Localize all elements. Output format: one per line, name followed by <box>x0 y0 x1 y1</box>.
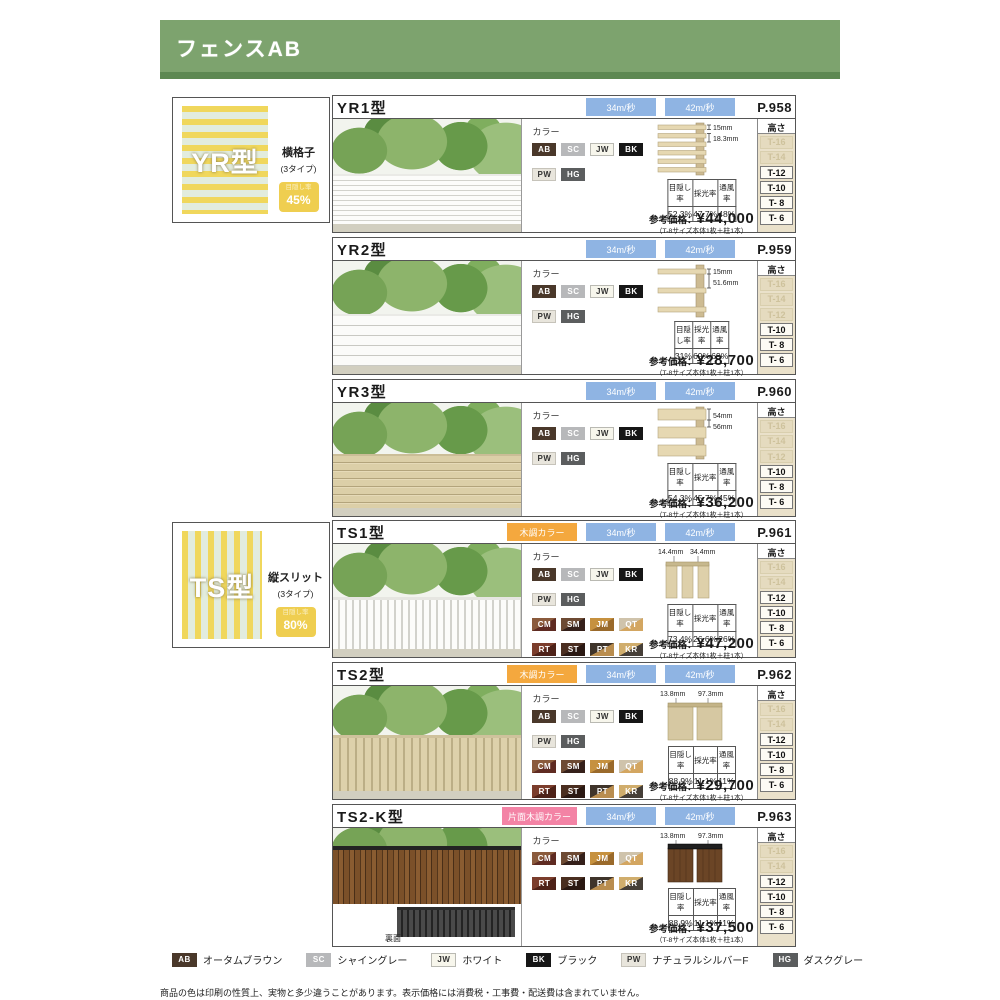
color-swatch: BK <box>619 143 643 156</box>
height-cell: T-14 <box>760 293 793 307</box>
height-cell: T- 8 <box>760 905 793 919</box>
wood-color-badge: 木調カラー <box>507 523 577 541</box>
fence-photo-yr2 <box>333 261 522 374</box>
height-cell: T-14 <box>760 576 793 590</box>
ts-stripe-panel: TS型 <box>182 531 262 639</box>
color-swatch: QT <box>619 618 643 631</box>
color-swatch: ST <box>561 643 585 656</box>
color-swatch: SC <box>561 710 585 723</box>
height-cell: T- 6 <box>760 920 793 934</box>
wood-color-badge: 片面木調カラー <box>502 807 577 825</box>
color-swatch: PT <box>590 785 614 798</box>
color-label: カラー <box>532 550 646 563</box>
svg-text:13.8mm: 13.8mm <box>660 691 685 698</box>
color-legend: AB オータムブラウン SC シャイングレー JW ホワイト BK ブラック P… <box>172 952 863 967</box>
color-swatch: HG <box>561 593 585 606</box>
color-swatch: PW <box>532 593 556 606</box>
fence-graphic <box>333 846 521 906</box>
svg-text:18.3mm: 18.3mm <box>713 136 738 143</box>
svg-text:97.3mm: 97.3mm <box>698 691 723 698</box>
price-note: （T-8サイズ本体1枚＋柱1本） <box>646 225 757 235</box>
row-yr3: YR3型 34m/秒 42m/秒 P.960 <box>332 379 796 517</box>
color-swatch: KR <box>619 877 643 890</box>
wind-badge: 34m/秒 <box>586 240 656 258</box>
section-yr: YR型 横格子 (3タイプ) 目隠し率 45% YR1型 34m/秒 42m/秒 <box>172 95 796 519</box>
height-options: 高さ T-16 T-14 T-12 T-10 T- 8 T- 6 <box>757 544 795 657</box>
price-note: （T-8サイズ本体1枚＋柱1本） <box>646 509 757 519</box>
model-name: TS1型 <box>337 522 386 543</box>
fence-graphic <box>333 314 521 366</box>
wind-badge: 42m/秒 <box>665 807 735 825</box>
color-swatch: BK <box>526 953 551 967</box>
color-swatch: AB <box>532 710 556 723</box>
yr-emblem-box: YR型 横格子 (3タイプ) 目隠し率 45% <box>172 97 330 223</box>
ts-emblem-box: TS型 縦スリット (3タイプ) 目隠し率 80% <box>172 522 330 648</box>
height-cell: T-10 <box>760 181 793 195</box>
wind-badge: 34m/秒 <box>586 523 656 541</box>
color-swatch: AB <box>532 143 556 156</box>
color-swatch: RT <box>532 785 556 798</box>
yr-stripe-panel: YR型 <box>182 106 268 214</box>
color-swatch: PW <box>621 953 646 967</box>
color-swatch: CM <box>532 852 556 865</box>
color-swatch: PW <box>532 735 556 748</box>
height-cell: T-16 <box>760 136 793 150</box>
model-name: YR1型 <box>337 97 387 118</box>
color-swatch: BK <box>619 710 643 723</box>
color-swatch: JW <box>590 143 614 156</box>
height-cell: T-12 <box>760 591 793 605</box>
height-cell: T-10 <box>760 323 793 337</box>
page-banner-underline <box>160 72 840 79</box>
color-swatch: PW <box>532 168 556 181</box>
svg-text:56mm: 56mm <box>713 424 733 431</box>
color-swatch: SC <box>561 285 585 298</box>
svg-text:15mm: 15mm <box>713 269 733 276</box>
yr-emblem-label: YR型 <box>191 141 259 180</box>
page-ref: P.958 <box>746 100 792 115</box>
wind-badge: 34m/秒 <box>586 807 656 825</box>
legend-item: AB オータムブラウン <box>172 952 282 967</box>
page-ref: P.961 <box>746 525 792 540</box>
height-cell: T-12 <box>760 733 793 747</box>
height-cell: T-16 <box>760 561 793 575</box>
height-cell: T-14 <box>760 435 793 449</box>
svg-text:15mm: 15mm <box>713 125 733 132</box>
fence-diagram-ts2: 13.8mm 97.3mm <box>646 688 757 744</box>
color-swatch: JM <box>590 852 614 865</box>
wood-color-badge: 木調カラー <box>507 665 577 683</box>
height-cell: T- 6 <box>760 211 793 225</box>
color-swatch: AB <box>532 285 556 298</box>
fence-photo-ts2 <box>333 686 522 799</box>
color-swatch: ST <box>561 877 585 890</box>
model-name: YR3型 <box>337 381 387 402</box>
fence-diagram-ts1: 14.4mm 34.4mm <box>646 546 757 602</box>
fence-photo-yr1 <box>333 119 522 232</box>
color-swatch: AB <box>532 568 556 581</box>
svg-text:97.3mm: 97.3mm <box>698 833 723 840</box>
color-swatch: JM <box>590 760 614 773</box>
color-swatch: SM <box>561 760 585 773</box>
color-swatch: CM <box>532 760 556 773</box>
wind-badge: 34m/秒 <box>586 665 656 683</box>
color-swatch: AB <box>172 953 197 967</box>
ts-type-count: (3タイプ) <box>278 588 314 600</box>
color-swatch: JM <box>590 618 614 631</box>
price-note: （T-8サイズ本体1枚＋柱1本） <box>646 792 757 802</box>
svg-text:51.6mm: 51.6mm <box>713 280 738 287</box>
color-swatch: AB <box>532 427 556 440</box>
color-label: カラー <box>532 692 646 705</box>
color-swatch: BK <box>619 285 643 298</box>
wind-badge: 42m/秒 <box>665 382 735 400</box>
color-swatch: SC <box>561 568 585 581</box>
color-swatch: JW <box>590 285 614 298</box>
section-ts: TS型 縦スリット (3タイプ) 目隠し率 80% TS1型 木調カラー 34m… <box>172 520 796 948</box>
color-swatch: PW <box>532 310 556 323</box>
page-ref: P.960 <box>746 384 792 399</box>
height-cell: T-12 <box>760 308 793 322</box>
color-swatch: RT <box>532 877 556 890</box>
fence-graphic <box>333 454 521 508</box>
height-cell: T- 8 <box>760 196 793 210</box>
ts-type-label: 縦スリット <box>268 569 323 585</box>
yr-rate-badge: 目隠し率 45% <box>279 182 319 212</box>
price-note: （T-8サイズ本体1枚＋柱1本） <box>646 934 757 944</box>
fence-diagram-ts2k: 13.8mm 97.3mm <box>646 830 757 886</box>
wind-badge: 34m/秒 <box>586 382 656 400</box>
height-options: 高さ T-16 T-14 T-12 T-10 T- 8 T- 6 <box>757 403 795 516</box>
fence-photo-ts2k: 裏面 <box>333 828 522 946</box>
page-title: フェンスAB <box>176 33 302 63</box>
yr-type-count: (3タイプ) <box>281 163 317 175</box>
color-swatch: PW <box>532 452 556 465</box>
height-cell: T- 8 <box>760 480 793 494</box>
wind-badge: 42m/秒 <box>665 665 735 683</box>
fence-graphic <box>333 597 521 649</box>
color-swatch: PT <box>590 643 614 656</box>
color-swatch: SC <box>561 143 585 156</box>
height-cell: T-16 <box>760 703 793 717</box>
height-cell: T- 6 <box>760 353 793 367</box>
height-options: 高さ T-16 T-14 T-12 T-10 T- 8 T- 6 <box>757 261 795 374</box>
color-swatch: HG <box>561 168 585 181</box>
fence-diagram-yr3: 54mm 56mm <box>646 405 757 461</box>
color-swatch: HG <box>561 452 585 465</box>
back-side-label: 裏面 <box>385 933 401 944</box>
color-swatch: SC <box>306 953 331 967</box>
height-options: 高さ T-16 T-14 T-12 T-10 T- 8 T- 6 <box>757 686 795 799</box>
ts-emblem-label: TS型 <box>190 566 255 605</box>
row-ts1: TS1型 木調カラー 34m/秒 42m/秒 P.961 <box>332 520 796 658</box>
height-cell: T- 6 <box>760 778 793 792</box>
color-swatch: HG <box>773 953 798 967</box>
height-cell: T-10 <box>760 606 793 620</box>
model-name: TS2-K型 <box>337 806 404 827</box>
page-ref: P.962 <box>746 667 792 682</box>
catalog-page: フェンスAB YR型 横格子 (3タイプ) 目隠し率 45% YR1型 <box>0 0 1000 1000</box>
color-swatch: JW <box>431 953 456 967</box>
height-cell: T- 8 <box>760 763 793 777</box>
color-label: カラー <box>532 409 646 422</box>
color-swatch: KR <box>619 785 643 798</box>
footnote: 商品の色は印刷の性質上、実物と多少違うことがあります。表示価格には消費税・工事費… <box>160 986 645 999</box>
height-options: 高さ T-16 T-14 T-12 T-10 T- 8 T- 6 <box>757 119 795 232</box>
height-cell: T-12 <box>760 450 793 464</box>
height-cell: T-10 <box>760 890 793 904</box>
color-swatch: QT <box>619 760 643 773</box>
svg-text:13.8mm: 13.8mm <box>660 833 685 840</box>
height-cell: T-12 <box>760 875 793 889</box>
legend-item: JW ホワイト <box>431 952 502 967</box>
color-swatch: SM <box>561 852 585 865</box>
height-cell: T-14 <box>760 718 793 732</box>
back-side-fence-graphic <box>397 907 515 937</box>
wind-badge: 34m/秒 <box>586 98 656 116</box>
height-cell: T-10 <box>760 465 793 479</box>
row-yr2: YR2型 34m/秒 42m/秒 P.959 <box>332 237 796 375</box>
svg-text:34.4mm: 34.4mm <box>690 549 715 556</box>
row-ts2: TS2型 木調カラー 34m/秒 42m/秒 P.962 <box>332 662 796 800</box>
legend-item: BK ブラック <box>526 952 597 967</box>
yr-type-label: 横格子 <box>282 144 315 160</box>
color-swatch: JW <box>590 710 614 723</box>
color-swatch: JW <box>590 427 614 440</box>
color-swatch: PT <box>590 877 614 890</box>
height-cell: T- 6 <box>760 636 793 650</box>
wind-badge: 42m/秒 <box>665 240 735 258</box>
color-swatch: SC <box>561 427 585 440</box>
legend-item: SC シャイングレー <box>306 952 407 967</box>
fence-diagram-yr1: 15mm 18.3mm <box>646 121 757 177</box>
height-cell: T- 6 <box>760 495 793 509</box>
color-swatch: HG <box>561 735 585 748</box>
color-swatch: KR <box>619 643 643 656</box>
price-note: （T-8サイズ本体1枚＋柱1本） <box>646 650 757 660</box>
fence-graphic <box>333 174 521 224</box>
row-ts2k: TS2-K型 片面木調カラー 34m/秒 42m/秒 P.963 <box>332 804 796 947</box>
color-swatch: BK <box>619 568 643 581</box>
color-swatch: ST <box>561 785 585 798</box>
height-cell: T-14 <box>760 860 793 874</box>
color-swatch: SM <box>561 618 585 631</box>
height-cell: T- 8 <box>760 621 793 635</box>
color-swatch: RT <box>532 643 556 656</box>
model-name: TS2型 <box>337 664 386 685</box>
model-name: YR2型 <box>337 239 387 260</box>
wind-badge: 42m/秒 <box>665 98 735 116</box>
height-cell: T- 8 <box>760 338 793 352</box>
color-swatch: HG <box>561 310 585 323</box>
color-swatch: CM <box>532 618 556 631</box>
page-ref: P.959 <box>746 242 792 257</box>
height-cell: T-10 <box>760 748 793 762</box>
fence-graphic <box>333 735 521 791</box>
color-label: カラー <box>532 267 646 280</box>
color-swatch: JW <box>590 568 614 581</box>
price-note: （T-8サイズ本体1枚＋柱1本） <box>646 367 757 377</box>
height-cell: T-16 <box>760 420 793 434</box>
fence-photo-yr3 <box>333 403 522 516</box>
wind-badge: 42m/秒 <box>665 523 735 541</box>
height-cell: T-16 <box>760 845 793 859</box>
page-ref: P.963 <box>746 809 792 824</box>
fence-diagram-yr2: 15mm 51.6mm <box>646 263 757 319</box>
ts-rate-badge: 目隠し率 80% <box>276 607 316 637</box>
legend-item: HG ダスクグレー <box>773 952 864 967</box>
height-options: 高さ T-16 T-14 T-12 T-10 T- 8 T- 6 <box>757 828 795 946</box>
legend-item: PW ナチュラルシルバーF <box>621 952 748 967</box>
color-swatch: QT <box>619 852 643 865</box>
height-cell: T-12 <box>760 166 793 180</box>
color-label: カラー <box>532 125 646 138</box>
color-swatch: BK <box>619 427 643 440</box>
height-cell: T-14 <box>760 151 793 165</box>
row-yr1: YR1型 34m/秒 42m/秒 P.958 <box>332 95 796 233</box>
svg-text:14.4mm: 14.4mm <box>658 549 683 556</box>
color-label: カラー <box>532 834 646 847</box>
height-cell: T-16 <box>760 278 793 292</box>
svg-text:54mm: 54mm <box>713 413 733 420</box>
fence-photo-ts1 <box>333 544 522 657</box>
